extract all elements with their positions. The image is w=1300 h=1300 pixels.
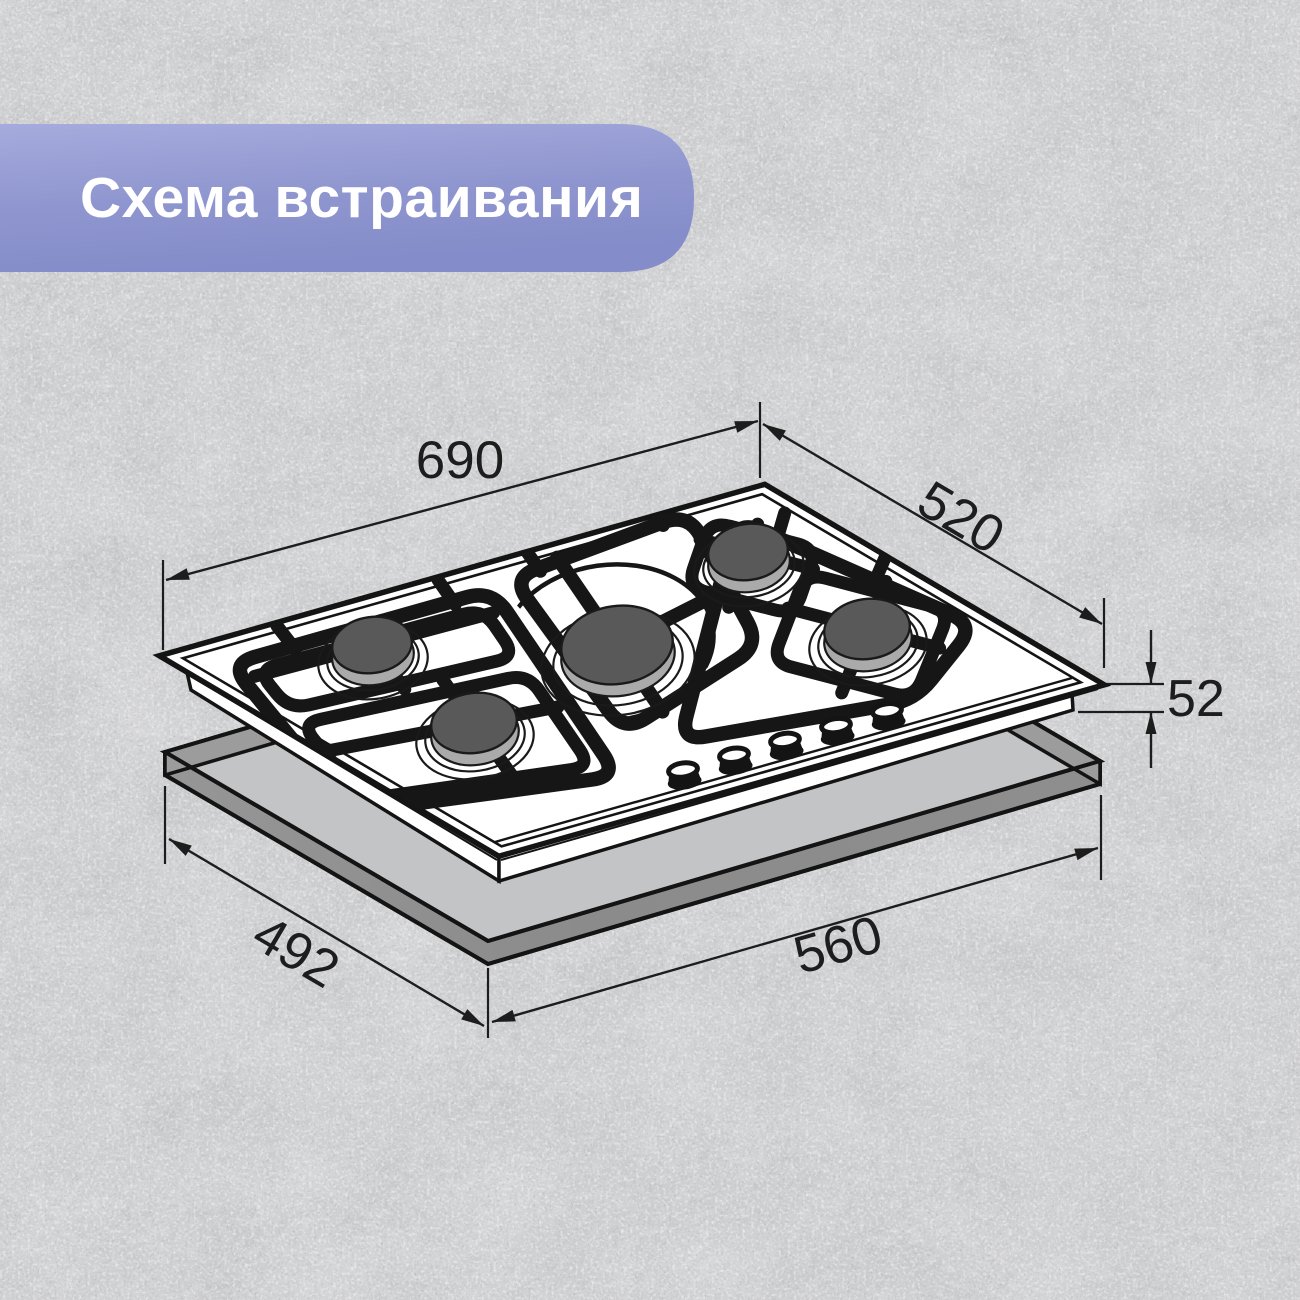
svg-text:690: 690 [416, 431, 504, 490]
svg-text:52: 52 [1167, 670, 1225, 728]
svg-text:Схема встраивания: Схема встраивания [80, 166, 643, 230]
